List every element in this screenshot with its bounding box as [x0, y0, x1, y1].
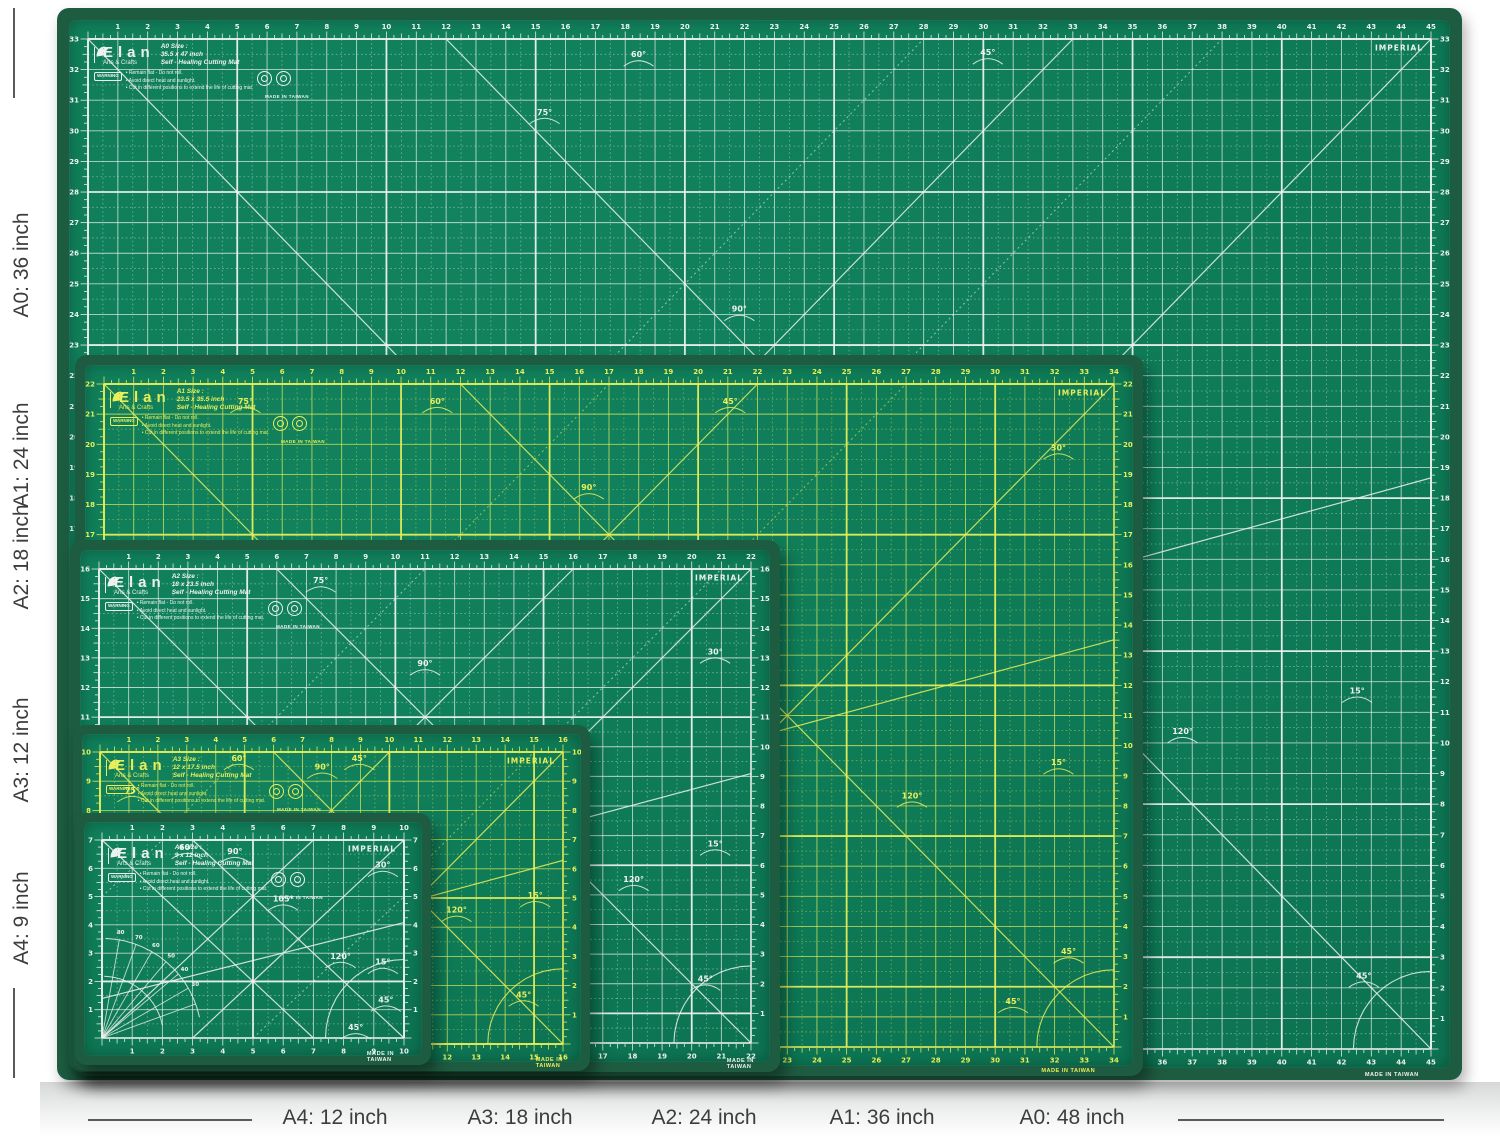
product-name: Self - Healing Cutting Mat [175, 860, 254, 868]
warning-chip: WARNING [105, 602, 133, 611]
svg-text:21: 21 [710, 23, 720, 31]
svg-text:32: 32 [1050, 1057, 1060, 1065]
care-bullet: Cut in different positions to extend the… [142, 430, 270, 438]
svg-text:10: 10 [82, 749, 91, 757]
svg-text:12: 12 [456, 368, 466, 376]
svg-text:8: 8 [1440, 801, 1445, 809]
made-in-label-logo: MADE IN TAIWAN [108, 896, 323, 901]
svg-text:23: 23 [782, 1057, 792, 1065]
svg-text:13: 13 [485, 368, 495, 376]
svg-text:41: 41 [1307, 23, 1317, 31]
svg-text:13: 13 [471, 23, 481, 31]
svg-text:10: 10 [399, 824, 409, 832]
svg-text:7: 7 [300, 736, 305, 744]
svg-text:45°: 45° [698, 974, 713, 983]
size-text-block: A2 Size :18 x 23.5 inchSelf - Healing Cu… [170, 573, 251, 597]
svg-text:15°: 15° [1350, 686, 1365, 695]
svg-text:80: 80 [117, 930, 125, 936]
svg-text:60: 60 [152, 943, 160, 949]
svg-text:11: 11 [760, 714, 770, 722]
brand-logo-block-a2: ElanArts & CraftsA2 Size :18 x 23.5 inch… [105, 573, 320, 629]
svg-text:14: 14 [509, 553, 519, 561]
size-title: A2 Size : [172, 573, 251, 581]
svg-text:3: 3 [1440, 954, 1445, 962]
svg-text:11: 11 [413, 736, 423, 744]
svg-text:28: 28 [69, 189, 79, 197]
svg-text:70: 70 [135, 935, 143, 941]
svg-text:31: 31 [1008, 23, 1018, 31]
svg-text:23: 23 [782, 368, 792, 376]
svg-text:25: 25 [69, 280, 79, 288]
svg-text:13: 13 [80, 654, 90, 662]
svg-text:19: 19 [657, 553, 667, 561]
svg-text:7: 7 [88, 837, 93, 845]
svg-text:45: 45 [1426, 23, 1436, 31]
svg-text:39: 39 [1247, 23, 1257, 31]
svg-text:5: 5 [88, 893, 93, 901]
svg-text:4: 4 [205, 23, 210, 31]
svg-text:14: 14 [80, 625, 90, 633]
svg-text:4: 4 [220, 1048, 225, 1056]
svg-text:21: 21 [716, 553, 726, 561]
svg-text:17: 17 [590, 23, 600, 31]
size-text-block: A3 Size :12 x 17.5 inchSelf - Healing Cu… [171, 756, 252, 780]
svg-text:1: 1 [131, 368, 136, 376]
svg-text:36: 36 [1158, 1059, 1168, 1067]
svg-text:2: 2 [160, 1048, 165, 1056]
svg-text:14: 14 [500, 1054, 510, 1062]
size-text-block: A4 Size :9 x 12 inchSelf - Healing Cutti… [173, 844, 254, 868]
svg-text:13: 13 [471, 736, 481, 744]
svg-text:34: 34 [1109, 1057, 1119, 1065]
svg-text:1: 1 [115, 23, 120, 31]
svg-text:23: 23 [69, 342, 79, 350]
svg-text:4: 4 [1123, 923, 1128, 931]
svg-text:31: 31 [1020, 1057, 1030, 1065]
svg-text:32: 32 [1038, 23, 1048, 31]
svg-text:1: 1 [127, 736, 132, 744]
svg-text:1: 1 [130, 1048, 135, 1056]
svg-text:8: 8 [334, 553, 339, 561]
svg-text:3: 3 [185, 553, 190, 561]
svg-text:45°: 45° [348, 1023, 363, 1032]
svg-text:45°: 45° [1005, 997, 1020, 1006]
cert-icon-1 [273, 416, 288, 431]
svg-text:6: 6 [265, 23, 270, 31]
svg-text:7: 7 [572, 836, 577, 844]
svg-text:9: 9 [354, 23, 359, 31]
svg-text:29: 29 [961, 1057, 971, 1065]
svg-text:18: 18 [628, 1053, 638, 1061]
svg-text:19: 19 [664, 368, 674, 376]
svg-text:15: 15 [529, 736, 539, 744]
svg-text:21: 21 [85, 411, 95, 419]
svg-text:9: 9 [363, 553, 368, 561]
svg-text:29: 29 [1440, 158, 1450, 166]
svg-text:4: 4 [215, 553, 220, 561]
svg-text:33: 33 [69, 36, 79, 44]
svg-text:27: 27 [1440, 219, 1450, 227]
svg-text:9: 9 [1440, 770, 1445, 778]
svg-text:31: 31 [69, 97, 79, 105]
svg-text:16: 16 [80, 566, 90, 574]
bottom-dimension-label-0: A4: 12 inch [282, 1106, 387, 1130]
cert-icon-1 [268, 601, 283, 616]
svg-text:15: 15 [531, 23, 541, 31]
svg-text:12: 12 [1123, 682, 1133, 690]
made-in-label-edge-a2: MADE IN TAIWAN [727, 1058, 763, 1070]
svg-text:19: 19 [1123, 471, 1133, 479]
svg-text:6: 6 [413, 865, 418, 873]
svg-text:6: 6 [274, 553, 279, 561]
elan-bird-logo-icon [106, 756, 123, 773]
svg-text:34: 34 [1109, 368, 1119, 376]
svg-text:21: 21 [1440, 403, 1450, 411]
svg-text:22: 22 [746, 553, 756, 561]
svg-text:14: 14 [1440, 617, 1450, 625]
svg-text:33: 33 [1440, 36, 1450, 44]
left-dimension-line-segment-1 [13, 988, 15, 1078]
svg-text:5: 5 [245, 553, 250, 561]
svg-text:2: 2 [1123, 983, 1128, 991]
svg-text:26: 26 [1440, 250, 1450, 258]
svg-text:4: 4 [213, 736, 218, 744]
svg-text:5: 5 [250, 368, 255, 376]
care-bullets: Remain flat - Do not roll.Avoid direct h… [142, 415, 270, 438]
svg-text:8: 8 [329, 736, 334, 744]
svg-text:12: 12 [760, 684, 770, 692]
care-bullets: Remain flat - Do not roll.Avoid direct h… [137, 600, 265, 623]
svg-text:11: 11 [1123, 712, 1133, 720]
svg-text:14: 14 [1123, 622, 1133, 630]
size-text-block: A0 Size :35.5 x 47 inchSelf - Healing Cu… [159, 43, 240, 67]
product-name: Self - Healing Cutting Mat [161, 59, 240, 67]
svg-text:33: 33 [1068, 23, 1078, 31]
svg-text:16: 16 [558, 736, 568, 744]
svg-text:8: 8 [341, 1048, 346, 1056]
svg-text:33: 33 [1079, 1057, 1089, 1065]
care-bullet: Avoid direct heat and sunlight. [126, 78, 254, 86]
svg-text:6: 6 [1123, 863, 1128, 871]
care-bullet: Cut in different positions to extend the… [126, 85, 254, 93]
svg-text:16: 16 [1440, 556, 1450, 564]
imperial-label: IMPERIAL [695, 574, 743, 583]
svg-text:28: 28 [931, 368, 941, 376]
svg-text:42: 42 [1337, 1059, 1347, 1067]
svg-text:3: 3 [191, 368, 196, 376]
svg-text:22: 22 [1123, 381, 1133, 389]
care-bullet: Avoid direct heat and sunlight. [137, 608, 265, 616]
svg-text:24: 24 [812, 1057, 822, 1065]
cutting-mat-a4: 80706050403090°60°30°105°120°15°45°45°11… [75, 813, 431, 1065]
svg-text:4: 4 [88, 921, 93, 929]
size-title: A3 Size : [173, 756, 252, 764]
svg-text:3: 3 [760, 951, 765, 959]
svg-text:9: 9 [572, 778, 577, 786]
svg-text:5: 5 [1123, 893, 1128, 901]
care-bullet: Remain flat - Do not roll. [126, 70, 254, 78]
svg-text:6: 6 [760, 862, 765, 870]
svg-text:2: 2 [161, 368, 166, 376]
svg-text:16: 16 [760, 566, 770, 574]
product-name: Self - Healing Cutting Mat [177, 404, 256, 412]
svg-text:3: 3 [1123, 953, 1128, 961]
svg-text:10: 10 [760, 743, 770, 751]
care-bullet: Cut in different positions to extend the… [138, 798, 266, 806]
svg-text:23: 23 [1440, 342, 1450, 350]
cert-icon-2 [287, 601, 302, 616]
svg-text:3: 3 [572, 953, 577, 961]
svg-text:11: 11 [80, 714, 90, 722]
elan-bird-logo-icon [94, 43, 111, 60]
svg-text:12: 12 [441, 23, 451, 31]
svg-text:4: 4 [220, 824, 225, 832]
svg-text:20: 20 [85, 441, 95, 449]
svg-text:25: 25 [829, 23, 839, 31]
svg-text:7: 7 [760, 832, 765, 840]
mat-surface-a4: 80706050403090°60°30°105°120°15°45°45°11… [84, 822, 422, 1056]
svg-text:27: 27 [889, 23, 899, 31]
svg-text:7: 7 [294, 23, 299, 31]
left-dimension-label-3: A3: 12 inch [10, 697, 34, 802]
svg-text:19: 19 [650, 23, 660, 31]
svg-text:20: 20 [687, 553, 697, 561]
svg-text:45°: 45° [1356, 971, 1371, 980]
svg-text:4: 4 [760, 921, 765, 929]
svg-text:18: 18 [1440, 495, 1450, 503]
svg-text:4: 4 [220, 368, 225, 376]
svg-text:20: 20 [1123, 441, 1133, 449]
svg-text:1: 1 [413, 1006, 418, 1014]
svg-text:10: 10 [382, 23, 392, 31]
svg-text:17: 17 [598, 553, 608, 561]
svg-text:31: 31 [1020, 368, 1030, 376]
svg-text:19: 19 [85, 471, 95, 479]
svg-text:120°: 120° [330, 952, 351, 961]
svg-text:8: 8 [341, 824, 346, 832]
svg-text:30°: 30° [1051, 443, 1066, 452]
svg-text:20: 20 [1440, 433, 1450, 441]
svg-text:22: 22 [753, 368, 763, 376]
svg-text:11: 11 [1440, 709, 1450, 717]
svg-text:5: 5 [572, 895, 577, 903]
svg-text:12: 12 [1440, 678, 1450, 686]
svg-text:36: 36 [1158, 23, 1168, 31]
made-in-label-logo: MADE IN TAIWAN [110, 440, 325, 445]
svg-text:12: 12 [442, 1054, 452, 1062]
svg-text:28: 28 [919, 23, 929, 31]
svg-text:18: 18 [1123, 501, 1133, 509]
svg-text:22: 22 [740, 23, 750, 31]
product-name: Self - Healing Cutting Mat [172, 589, 251, 597]
svg-text:44: 44 [1396, 23, 1406, 31]
left-dimension-label-2: A2: 18 inch [10, 504, 34, 609]
table-surface [40, 1082, 1500, 1137]
svg-text:7: 7 [311, 824, 316, 832]
svg-text:7: 7 [304, 553, 309, 561]
svg-text:9: 9 [1123, 772, 1128, 780]
svg-text:30: 30 [191, 982, 199, 988]
svg-text:8: 8 [324, 23, 329, 31]
svg-text:38: 38 [1217, 1059, 1227, 1067]
cert-icon-1 [257, 71, 272, 86]
svg-text:4: 4 [1440, 923, 1445, 931]
svg-text:30: 30 [69, 127, 79, 135]
svg-text:18: 18 [620, 23, 630, 31]
svg-text:3: 3 [413, 950, 418, 958]
svg-text:15: 15 [1440, 586, 1450, 594]
svg-text:30: 30 [978, 23, 988, 31]
svg-text:30: 30 [990, 1057, 1000, 1065]
svg-text:3: 3 [88, 950, 93, 958]
svg-text:30°: 30° [375, 861, 390, 870]
svg-text:9: 9 [760, 773, 765, 781]
svg-text:5: 5 [760, 891, 765, 899]
svg-text:45: 45 [1426, 1059, 1436, 1067]
svg-text:15°: 15° [375, 958, 390, 967]
svg-text:17: 17 [1440, 525, 1450, 533]
svg-text:24: 24 [812, 368, 822, 376]
left-dimension-label-4: A4: 9 inch [10, 871, 34, 964]
care-bullet: Remain flat - Do not roll. [137, 600, 265, 608]
svg-text:10: 10 [390, 553, 400, 561]
svg-text:4: 4 [413, 921, 418, 929]
svg-text:5: 5 [251, 1048, 256, 1056]
svg-text:32: 32 [1050, 368, 1060, 376]
svg-text:8: 8 [1123, 802, 1128, 810]
svg-text:19: 19 [1440, 464, 1450, 472]
svg-text:16: 16 [568, 553, 578, 561]
care-bullet: Cut in different positions to extend the… [137, 615, 265, 623]
svg-text:2: 2 [413, 978, 418, 986]
svg-text:7: 7 [413, 837, 418, 845]
svg-text:2: 2 [1440, 984, 1445, 992]
svg-text:14: 14 [760, 625, 770, 633]
svg-text:120°: 120° [902, 791, 923, 800]
svg-text:25: 25 [842, 1057, 852, 1065]
svg-text:14: 14 [501, 23, 511, 31]
svg-text:30: 30 [990, 368, 1000, 376]
svg-text:39: 39 [1247, 1059, 1257, 1067]
made-in-label-logo: MADE IN TAIWAN [105, 625, 320, 630]
svg-text:16: 16 [1123, 561, 1133, 569]
svg-text:10: 10 [385, 736, 395, 744]
svg-text:9: 9 [358, 736, 363, 744]
svg-text:11: 11 [411, 23, 421, 31]
svg-text:25: 25 [842, 368, 852, 376]
svg-text:26: 26 [69, 250, 79, 258]
svg-text:90°: 90° [417, 659, 432, 668]
care-bullet: Cut in different positions to extend the… [140, 886, 268, 894]
svg-text:42: 42 [1337, 23, 1347, 31]
svg-text:45°: 45° [516, 990, 531, 999]
svg-text:6: 6 [572, 865, 577, 873]
size-value: 23.5 x 35.5 inch [177, 396, 256, 404]
svg-text:45°: 45° [980, 48, 995, 57]
bottom-dimension-label-2: A2: 24 inch [651, 1106, 756, 1130]
svg-text:60°: 60° [631, 50, 646, 59]
size-text-block: A1 Size :23.5 x 35.5 inchSelf - Healing … [175, 388, 256, 412]
size-title: A0 Size : [161, 43, 240, 51]
svg-text:26: 26 [871, 368, 881, 376]
svg-text:12: 12 [80, 684, 90, 692]
svg-text:10: 10 [1440, 739, 1450, 747]
made-in-label-logo: MADE IN TAIWAN [106, 808, 321, 813]
svg-text:37: 37 [1187, 1059, 1197, 1067]
svg-text:90°: 90° [732, 305, 747, 314]
made-in-label-edge-a1: MADE IN TAIWAN [1041, 1068, 1095, 1074]
svg-text:1: 1 [1440, 1015, 1445, 1023]
svg-text:24: 24 [1440, 311, 1450, 319]
care-bullet: Remain flat - Do not roll. [140, 871, 268, 879]
svg-text:17: 17 [598, 1053, 608, 1061]
svg-text:2: 2 [760, 980, 765, 988]
cert-icon-2 [290, 872, 305, 887]
elan-bird-logo-icon [105, 573, 122, 590]
svg-text:31: 31 [1440, 97, 1450, 105]
svg-text:1: 1 [760, 1010, 765, 1018]
cert-icon-2 [292, 416, 307, 431]
svg-text:6: 6 [1440, 862, 1445, 870]
imperial-label: IMPERIAL [1375, 44, 1423, 53]
care-bullet: Remain flat - Do not roll. [138, 783, 266, 791]
svg-text:23: 23 [770, 23, 780, 31]
svg-text:6: 6 [88, 865, 93, 873]
svg-text:20: 20 [687, 1053, 697, 1061]
svg-text:29: 29 [69, 158, 79, 166]
svg-text:29: 29 [949, 23, 959, 31]
svg-text:15: 15 [1123, 591, 1133, 599]
product-photo-cutting-mats: 75°60°45°90°120°15°45°112233445566778899… [0, 0, 1500, 1137]
svg-text:15: 15 [539, 553, 549, 561]
svg-text:20: 20 [693, 368, 703, 376]
svg-text:5: 5 [242, 736, 247, 744]
made-in-label-edge-a3: MADE IN TAIWAN [536, 1057, 572, 1069]
brand-logo-block-a4: ElanArts & CraftsA4 Size :9 x 12 inchSel… [108, 844, 323, 900]
warning-chip: WARNING [108, 873, 136, 882]
svg-text:13: 13 [760, 654, 770, 662]
svg-text:45°: 45° [723, 397, 738, 406]
bottom-dimension-line-segment-0 [88, 1119, 252, 1121]
svg-text:12: 12 [442, 736, 452, 744]
brand-logo-block-a3: ElanArts & CraftsA3 Size :12 x 17.5 inch… [106, 756, 321, 812]
svg-text:2: 2 [145, 23, 150, 31]
svg-text:8: 8 [572, 807, 577, 815]
cert-icon-2 [288, 784, 303, 799]
svg-text:50: 50 [167, 954, 175, 960]
svg-text:15: 15 [80, 595, 90, 603]
svg-text:3: 3 [184, 736, 189, 744]
svg-text:18: 18 [628, 553, 638, 561]
svg-text:18: 18 [85, 501, 95, 509]
svg-text:13: 13 [1440, 648, 1450, 656]
svg-text:11: 11 [420, 553, 430, 561]
svg-text:21: 21 [716, 1053, 726, 1061]
svg-text:11: 11 [426, 368, 436, 376]
warning-chip: WARNING [110, 417, 138, 426]
svg-text:37: 37 [1187, 23, 1197, 31]
svg-text:75°: 75° [537, 108, 552, 117]
svg-text:8: 8 [339, 368, 344, 376]
cert-icon-1 [269, 784, 284, 799]
svg-text:7: 7 [311, 1048, 316, 1056]
svg-text:34: 34 [1098, 23, 1108, 31]
svg-text:15°: 15° [1051, 758, 1066, 767]
left-dimension-label-0: A0: 36 inch [10, 212, 34, 317]
svg-text:2: 2 [160, 824, 165, 832]
bottom-dimension-label-4: A0: 48 inch [1019, 1106, 1124, 1130]
svg-text:20: 20 [680, 23, 690, 31]
